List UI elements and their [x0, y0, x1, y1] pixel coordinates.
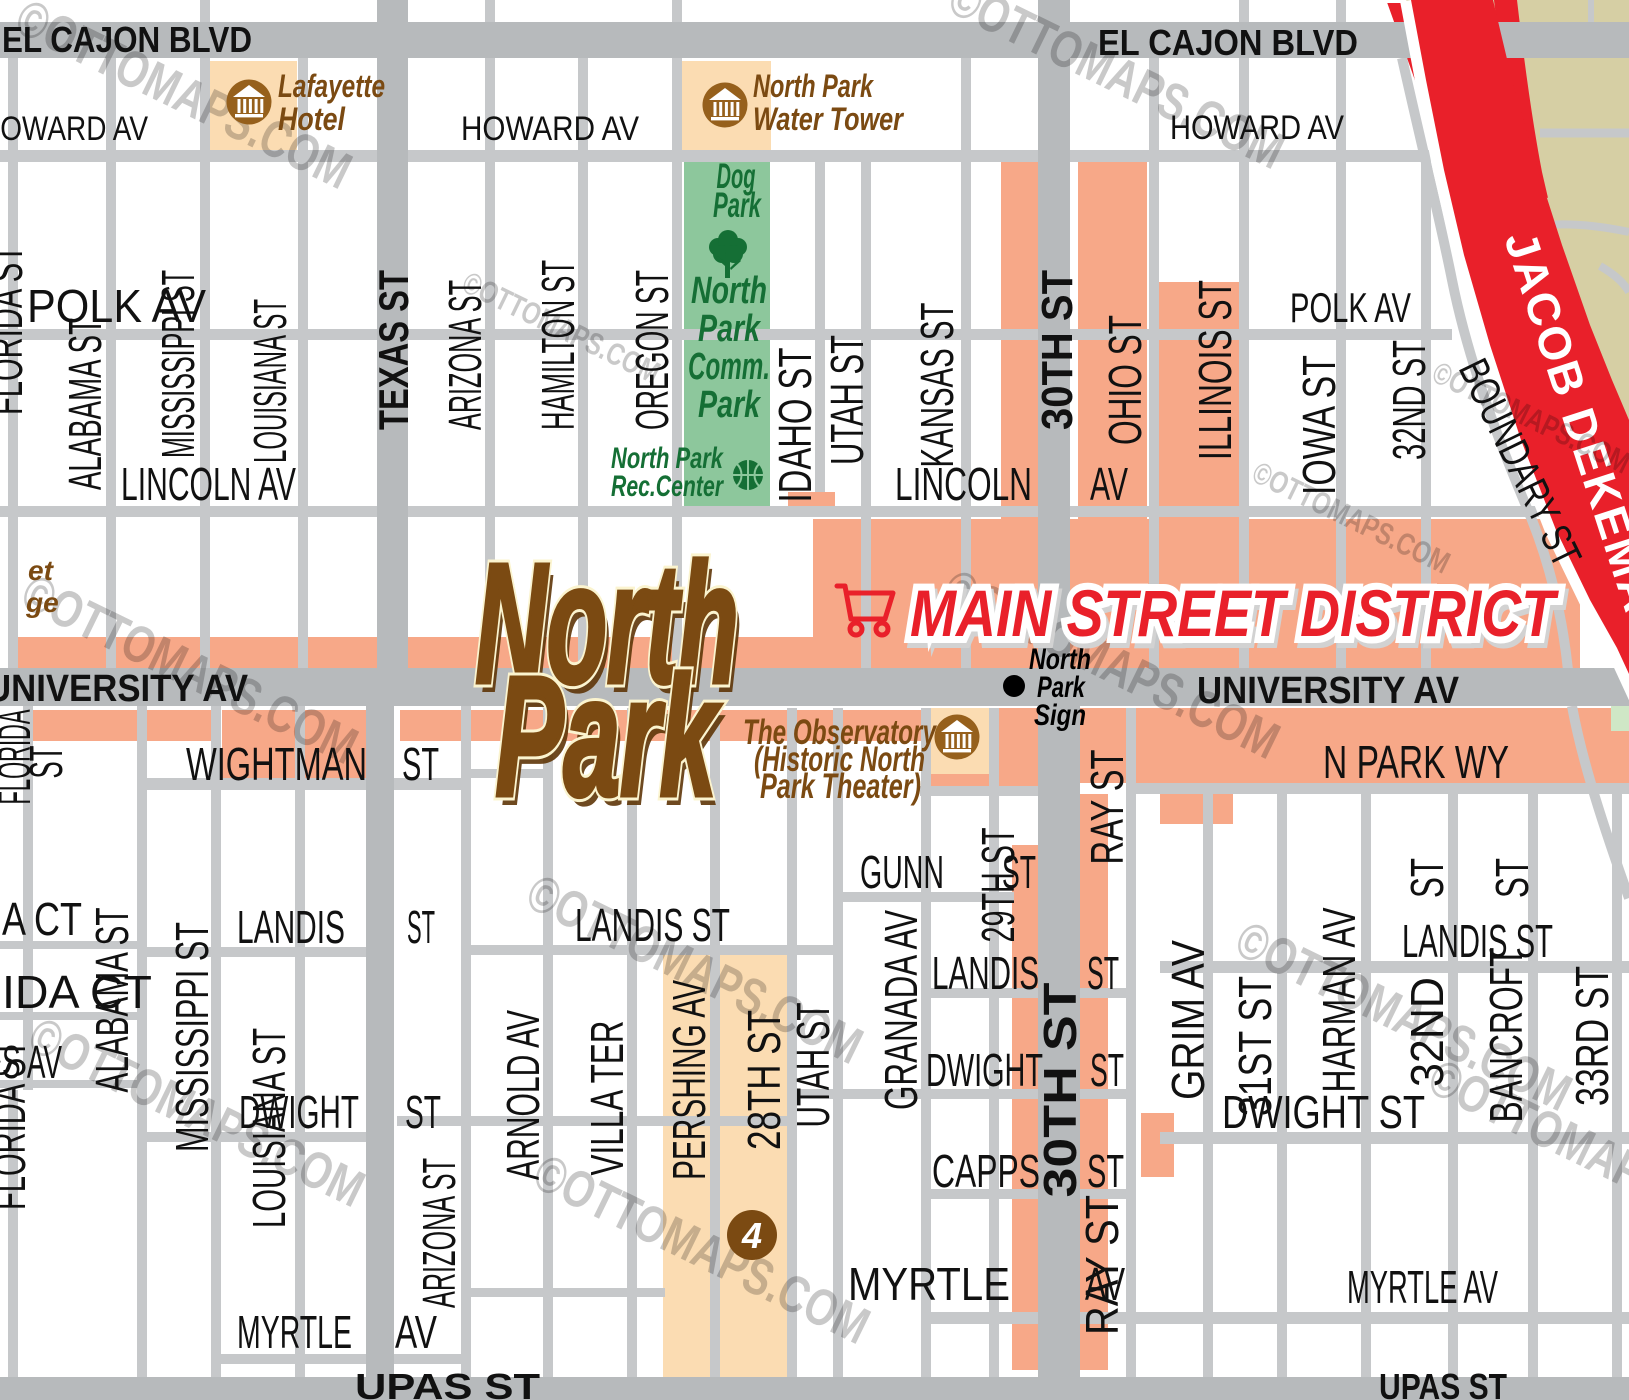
svg-text:et: et: [28, 555, 55, 586]
svg-text:OREGON ST: OREGON ST: [626, 270, 678, 430]
svg-text:FLORIDA ST: FLORIDA ST: [0, 1040, 35, 1210]
svg-text:30TH ST: 30TH ST: [1033, 270, 1082, 430]
svg-text:28TH ST: 28TH ST: [738, 1010, 790, 1150]
svg-text:ST: ST: [407, 901, 435, 953]
svg-text:ST: ST: [1090, 1044, 1124, 1096]
svg-text:RAY ST: RAY ST: [1076, 1195, 1128, 1335]
svg-text:ALABAMA ST: ALABAMA ST: [59, 318, 111, 490]
svg-text:Hotel: Hotel: [278, 101, 346, 137]
svg-text:IDAHO ST: IDAHO ST: [769, 348, 821, 503]
svg-text:Lafayette: Lafayette: [278, 68, 385, 104]
svg-text:ST: ST: [1486, 858, 1538, 898]
svg-text:LINCOLN AV: LINCOLN AV: [121, 458, 296, 510]
svg-text:ST: ST: [1087, 947, 1119, 999]
svg-text:GUNN: GUNN: [860, 846, 944, 898]
svg-text:ARNOLD AV: ARNOLD AV: [497, 1010, 549, 1180]
svg-text:MYRTLE: MYRTLE: [237, 1306, 352, 1358]
svg-text:ARIZONA ST: ARIZONA ST: [439, 280, 491, 430]
svg-text:4: 4: [741, 1215, 762, 1256]
svg-text:MISSISSIPPI ST: MISSISSIPPI ST: [166, 922, 218, 1152]
svg-text:UTAH ST: UTAH ST: [787, 1003, 839, 1128]
svg-text:MYRTLE: MYRTLE: [848, 1258, 1010, 1310]
svg-text:Park: Park: [496, 642, 721, 832]
svg-text:LOUISIANA ST: LOUISIANA ST: [243, 1028, 295, 1228]
svg-text:LANDIS: LANDIS: [237, 901, 345, 953]
svg-text:North: North: [691, 270, 767, 312]
svg-text:GRANADA AV: GRANADA AV: [875, 910, 927, 1110]
svg-text:VILLA TER: VILLA TER: [581, 1021, 633, 1176]
svg-text:LANDIS: LANDIS: [932, 947, 1039, 999]
svg-text:AV: AV: [395, 1306, 437, 1358]
svg-text:EL CAJON BLVD: EL CAJON BLVD: [2, 19, 252, 60]
svg-text:HOWARD AV: HOWARD AV: [0, 110, 148, 148]
svg-text:33RD ST: 33RD ST: [1566, 966, 1618, 1106]
svg-text:RAY ST: RAY ST: [1081, 750, 1133, 865]
svg-text:29TH ST: 29TH ST: [972, 828, 1024, 943]
svg-text:ST: ST: [402, 738, 439, 790]
svg-text:WIGHTMAN: WIGHTMAN: [186, 738, 367, 790]
svg-text:ST: ST: [1401, 858, 1453, 898]
svg-text:ST: ST: [20, 746, 72, 779]
svg-text:ILLINOIS ST: ILLINOIS ST: [1189, 280, 1241, 460]
svg-text:UTAH ST: UTAH ST: [821, 335, 873, 465]
svg-text:OHIO ST: OHIO ST: [1099, 315, 1151, 445]
svg-text:HOWARD AV: HOWARD AV: [1170, 109, 1344, 147]
svg-text:ST: ST: [1087, 1145, 1124, 1197]
svg-text:32ND: 32ND: [1401, 977, 1453, 1087]
svg-text:HARMAN AV: HARMAN AV: [1313, 907, 1365, 1092]
svg-text:30TH ST: 30TH ST: [1034, 983, 1086, 1198]
svg-text:ALABAMA ST: ALABAMA ST: [86, 908, 138, 1093]
svg-text:31ST ST: 31ST ST: [1229, 976, 1281, 1116]
svg-text:CAPPS: CAPPS: [932, 1145, 1040, 1197]
svg-text:MISSISSIPPI ST: MISSISSIPPI ST: [152, 270, 204, 458]
svg-text:ST: ST: [405, 1086, 441, 1138]
svg-text:32ND ST: 32ND ST: [1383, 340, 1435, 460]
svg-text:AV: AV: [1090, 458, 1128, 510]
svg-text:Park: Park: [698, 384, 761, 426]
svg-text:UNIVERSITY AV: UNIVERSITY AV: [1197, 670, 1460, 712]
svg-text:Water Tower: Water Tower: [753, 101, 904, 137]
svg-text:UPAS ST: UPAS ST: [1379, 1366, 1507, 1400]
svg-text:HAMILTON ST: HAMILTON ST: [532, 260, 584, 430]
svg-text:A CT: A CT: [2, 893, 82, 945]
svg-text:GRIM AV: GRIM AV: [1162, 940, 1214, 1100]
svg-text:Park: Park: [713, 186, 762, 225]
svg-text:MYRTLE AV: MYRTLE AV: [1347, 1261, 1498, 1313]
svg-text:TEXAS ST: TEXAS ST: [370, 270, 417, 430]
svg-text:UNIVERSITY AV: UNIVERSITY AV: [0, 668, 249, 710]
svg-text:MAIN STREET DISTRICT: MAIN STREET DISTRICT: [910, 576, 1559, 650]
svg-text:KANSAS ST: KANSAS ST: [911, 303, 963, 468]
svg-text:Park: Park: [698, 308, 761, 350]
svg-text:Park Theater): Park Theater): [760, 767, 921, 806]
svg-text:ARIZONA ST: ARIZONA ST: [413, 1158, 465, 1308]
svg-text:LANDIS ST: LANDIS ST: [575, 899, 730, 951]
svg-text:HOWARD AV: HOWARD AV: [461, 110, 639, 148]
svg-text:PERSHING AV: PERSHING AV: [663, 980, 715, 1180]
svg-text:UPAS ST: UPAS ST: [355, 1366, 540, 1400]
svg-text:Rec.Center: Rec.Center: [611, 470, 725, 503]
svg-text:IOWA ST: IOWA ST: [1293, 355, 1345, 495]
svg-text:North Park: North Park: [753, 68, 875, 104]
svg-text:POLK AV: POLK AV: [1290, 284, 1411, 331]
svg-text:DWIGHT: DWIGHT: [926, 1044, 1043, 1096]
svg-text:ge: ge: [25, 587, 59, 618]
svg-text:BANCROFT: BANCROFT: [1480, 948, 1532, 1123]
svg-text:Comm.: Comm.: [688, 346, 770, 388]
svg-text:Sign: Sign: [1034, 699, 1086, 732]
svg-text:N PARK WY: N PARK WY: [1323, 736, 1509, 788]
svg-text:FLORIDA ST: FLORIDA ST: [0, 245, 32, 415]
svg-text:EL CAJON BLVD: EL CAJON BLVD: [1098, 22, 1358, 63]
svg-text:LOUISIANA ST: LOUISIANA ST: [244, 299, 296, 463]
